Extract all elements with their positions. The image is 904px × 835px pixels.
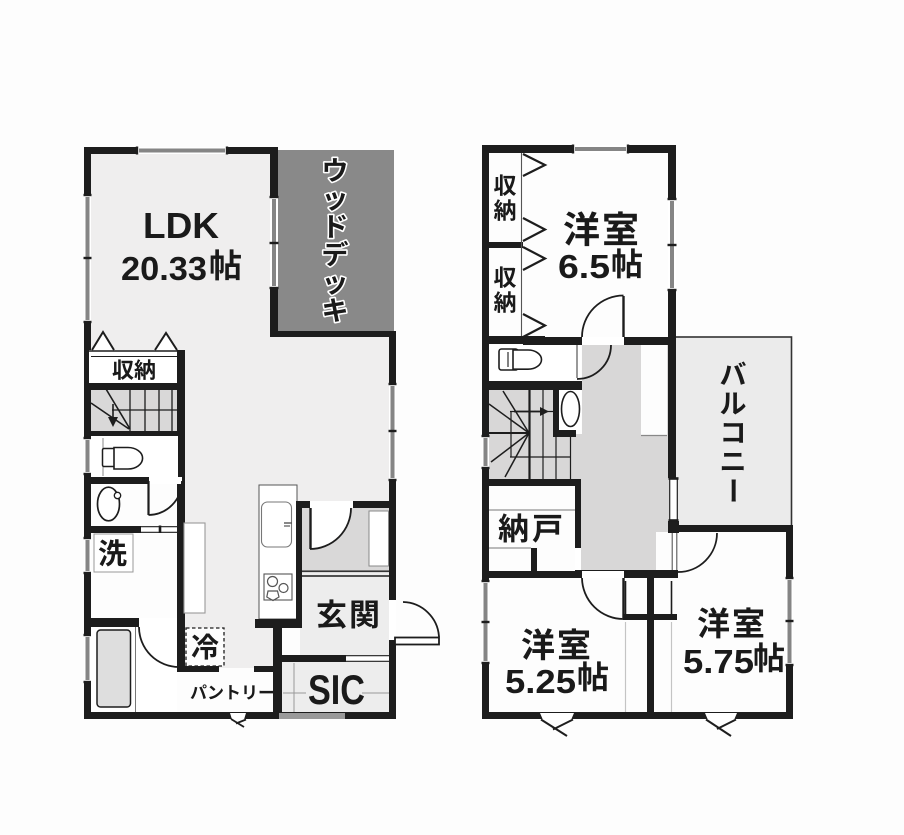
svg-text:5.25: 5.25 — [505, 663, 576, 700]
svg-text:LDK: LDK — [143, 205, 219, 246]
svg-text:SIC: SIC — [308, 666, 365, 713]
svg-text:5.75: 5.75 — [683, 643, 754, 680]
svg-text:20.33: 20.33 — [121, 250, 207, 287]
svg-text:6.5: 6.5 — [558, 248, 610, 285]
